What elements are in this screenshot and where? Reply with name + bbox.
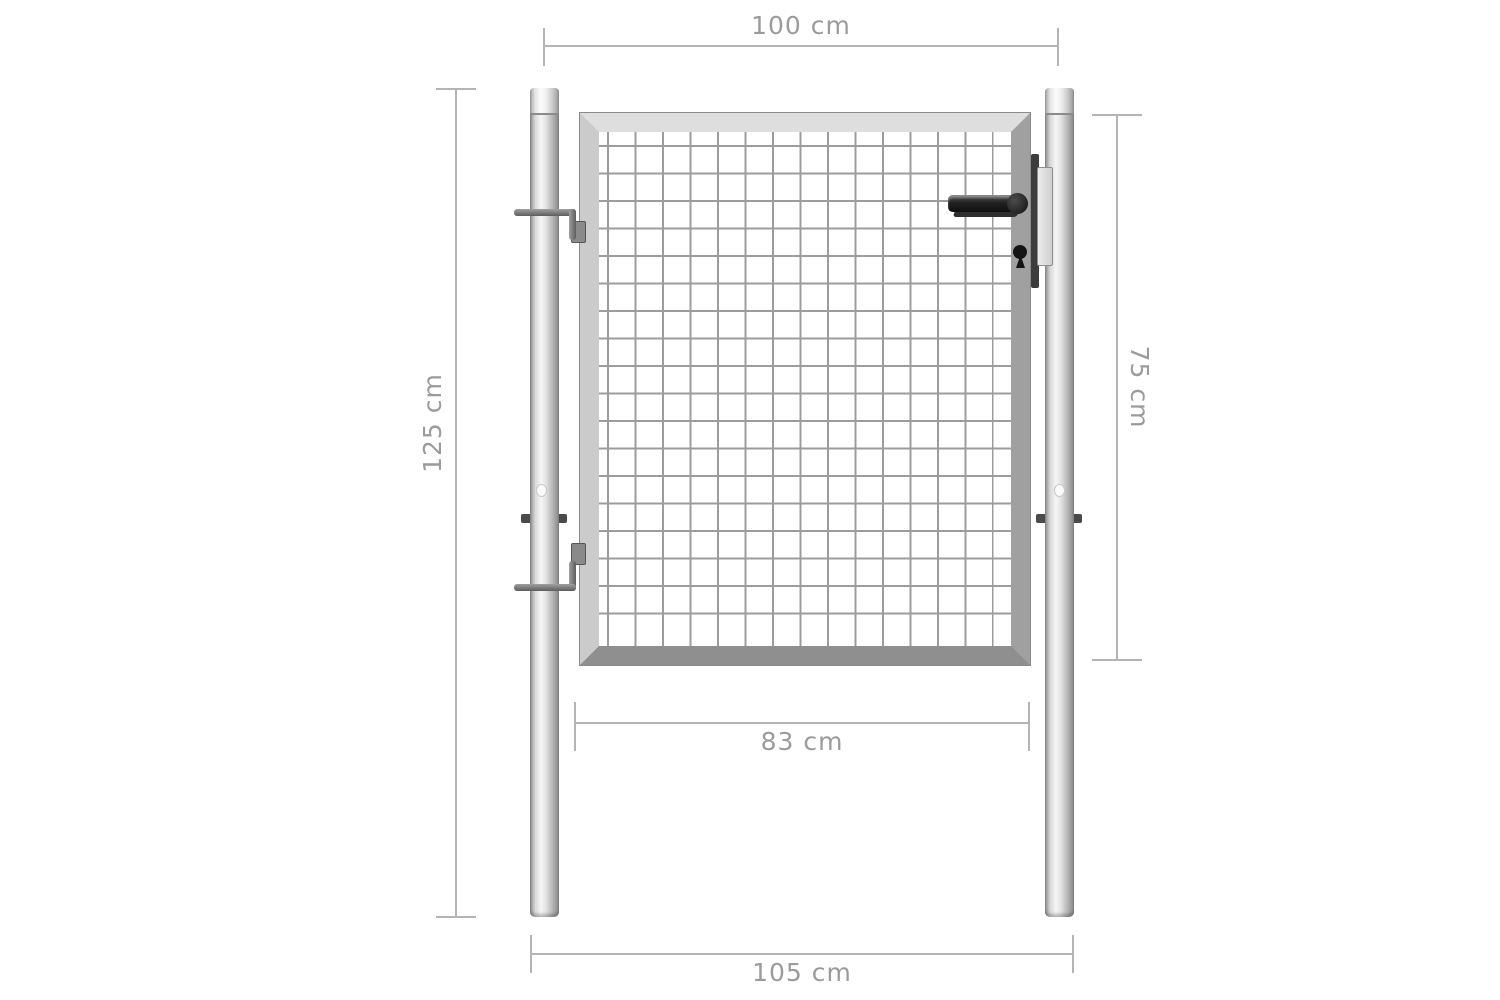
dim-bottom-tick-right [1072,935,1074,973]
dim-right-tick-bottom [1092,659,1142,661]
right-post-hole [1054,484,1065,497]
dim-inner-line [575,722,1029,724]
dim-right-tick-top [1092,114,1142,116]
upper-hinge-pin [514,209,576,216]
left-post-hole [536,484,547,497]
dim-inner-tick-left [574,702,576,751]
striker-plate [1037,167,1053,266]
dim-bottom-line [531,953,1073,955]
right-post-cap [1045,88,1074,115]
dim-bottom-tick-left [530,935,532,973]
dim-left-tick-bottom [436,916,476,918]
dim-left-tick-top [436,88,476,90]
dim-right-line [1116,115,1118,661]
dim-top-line [543,45,1059,47]
gate-dimension-diagram: 100 cm 125 cm 75 cm 83 cm 105 cm [0,0,1500,1000]
dim-right-label: 75 cm [1123,317,1155,457]
left-post-cap [530,88,559,115]
dim-left-label: 125 cm [417,353,449,493]
dim-inner-tick-right [1028,702,1030,751]
lower-hinge-pin [514,584,576,591]
dim-bottom-label: 105 cm [602,957,1002,989]
dim-inner-label: 83 cm [602,726,1002,758]
dim-top-label: 100 cm [543,10,1059,42]
dim-left-line [455,89,457,918]
upper-hinge-pin-vertical [569,209,576,240]
handle-pivot-boss [1007,193,1028,214]
